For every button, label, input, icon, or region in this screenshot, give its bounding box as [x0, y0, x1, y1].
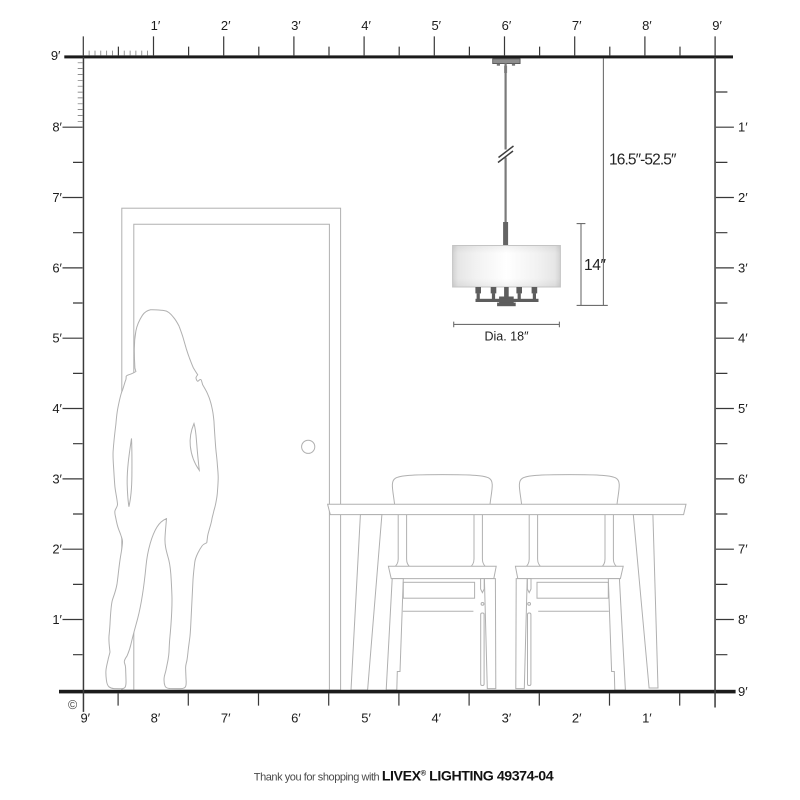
svg-text:4′: 4′	[361, 18, 371, 33]
svg-text:6′: 6′	[291, 711, 301, 726]
svg-text:3′: 3′	[52, 471, 62, 486]
svg-text:4′: 4′	[52, 401, 62, 416]
svg-text:3′: 3′	[738, 260, 748, 275]
svg-text:5′: 5′	[738, 401, 748, 416]
svg-text:5′: 5′	[431, 18, 441, 33]
svg-text:6′: 6′	[738, 471, 748, 486]
svg-text:7′: 7′	[52, 190, 62, 205]
svg-text:7′: 7′	[221, 711, 231, 726]
svg-text:14″: 14″	[584, 257, 606, 274]
svg-text:9′: 9′	[712, 18, 722, 33]
svg-text:Thank you for shopping with LI: Thank you for shopping with LIVEX® LIGHT…	[254, 769, 554, 785]
svg-text:3′: 3′	[291, 18, 301, 33]
svg-text:1′: 1′	[151, 18, 161, 33]
svg-text:2′: 2′	[572, 711, 582, 726]
svg-text:1′: 1′	[738, 120, 748, 135]
svg-text:9′: 9′	[738, 684, 748, 699]
svg-text:8′: 8′	[151, 711, 161, 726]
svg-text:2′: 2′	[52, 542, 62, 557]
svg-text:6′: 6′	[52, 260, 62, 275]
svg-text:4′: 4′	[431, 711, 441, 726]
svg-text:4′: 4′	[738, 331, 748, 346]
svg-text:5′: 5′	[52, 331, 62, 346]
svg-text:7′: 7′	[738, 542, 748, 557]
svg-text:2′: 2′	[738, 190, 748, 205]
svg-text:8′: 8′	[52, 120, 62, 135]
svg-text:Dia. 18″: Dia. 18″	[484, 330, 529, 344]
svg-text:7′: 7′	[572, 18, 582, 33]
svg-text:9′: 9′	[51, 48, 61, 63]
svg-text:5′: 5′	[361, 711, 371, 726]
svg-text:1′: 1′	[52, 612, 62, 627]
svg-text:8′: 8′	[738, 612, 748, 627]
svg-text:1′: 1′	[642, 711, 652, 726]
svg-text:3′: 3′	[502, 711, 512, 726]
svg-text:©: ©	[68, 698, 78, 712]
svg-text:8′: 8′	[642, 18, 652, 33]
svg-text:6′: 6′	[502, 18, 512, 33]
svg-text:16.5″-52.5″: 16.5″-52.5″	[609, 152, 677, 169]
svg-text:9′: 9′	[80, 711, 90, 726]
svg-text:2′: 2′	[221, 18, 231, 33]
